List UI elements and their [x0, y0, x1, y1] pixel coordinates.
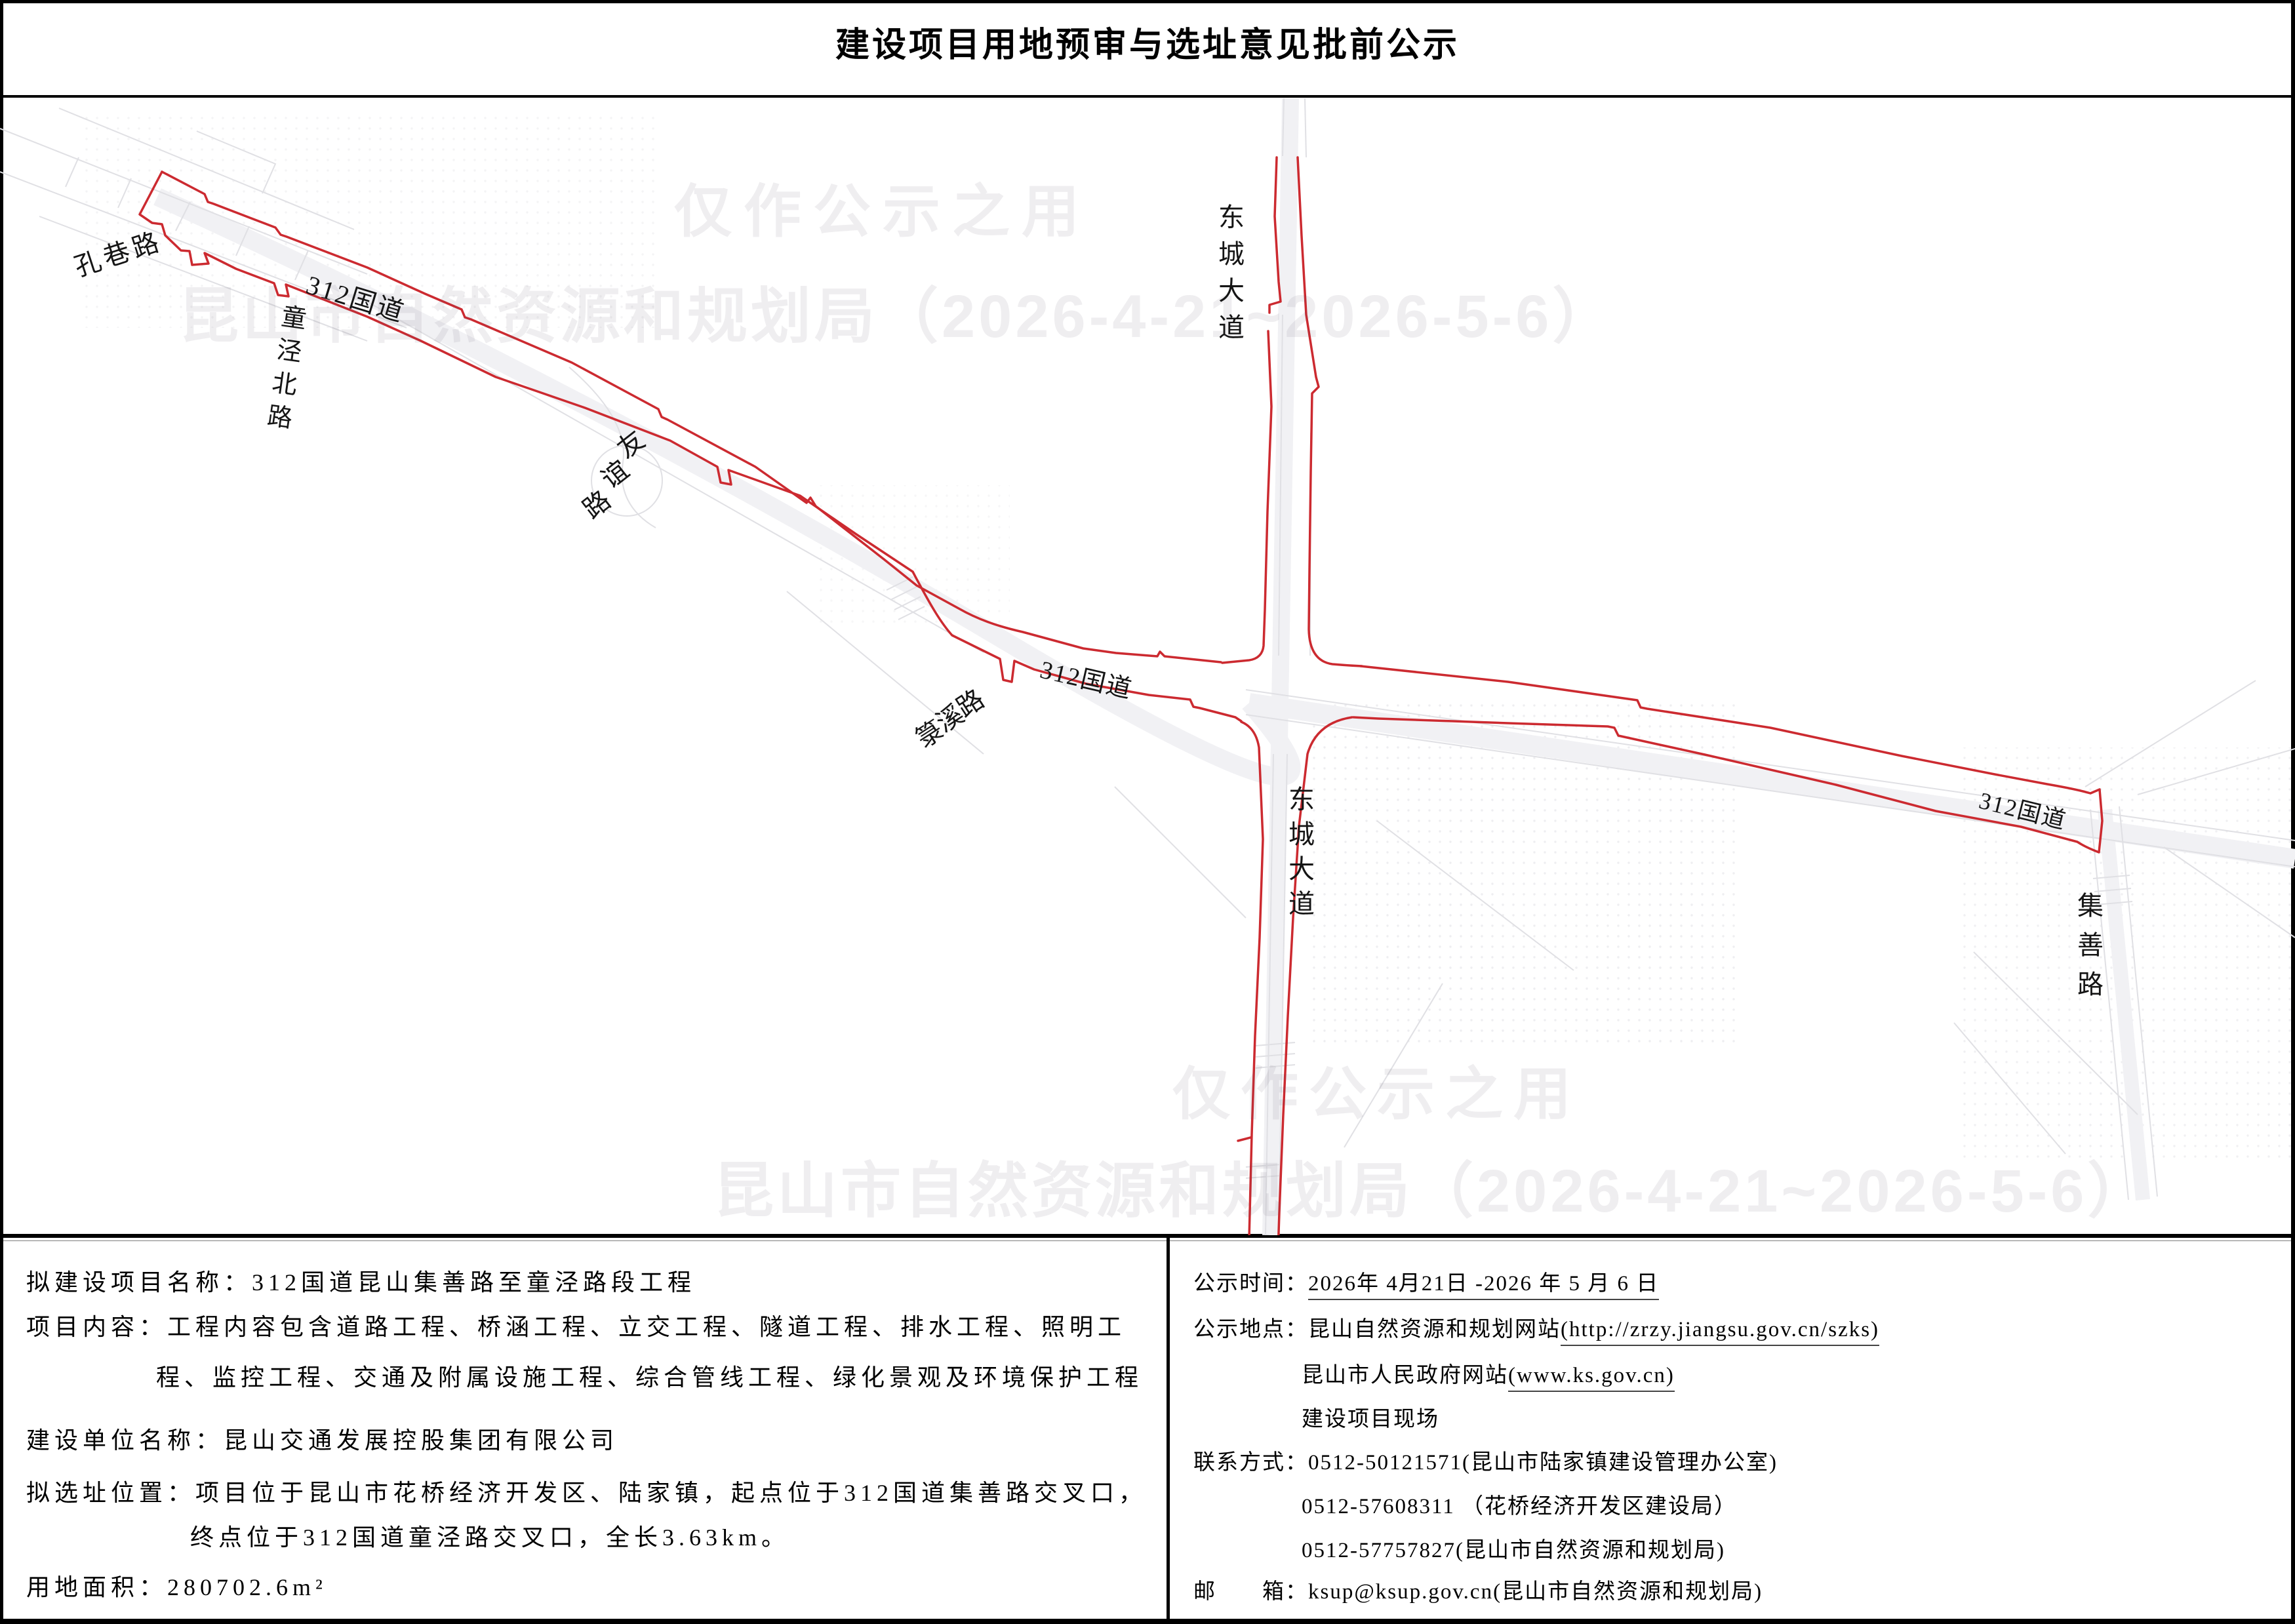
info-text: 程、监控工程、交通及附属设施工程、综合管线工程、绿化景观及环境保护工程 [156, 1364, 1143, 1391]
page-border-top [0, 0, 2295, 3]
info-text: (http://zrzy.jiangsu.gov.cn/szks) [1561, 1318, 1879, 1346]
info-text: 拟选址位置：项目位于昆山市花桥经济开发区、陆家镇，起点位于312国道集善路交叉口… [26, 1480, 1147, 1506]
info-text: 公示地点：昆山自然资源和规划网站 [1193, 1318, 1561, 1341]
dongcheng-north-west-edge-2 [1222, 331, 1271, 663]
land-area-row: 用地面积：280702.6m² [26, 1568, 327, 1602]
site-location-row-2: 终点位于312国道童泾路交叉口，全长3.63km。 [190, 1518, 789, 1553]
project-content-row: 项目内容：工程内容包含道路工程、桥涵工程、立交工程、隧道工程、排水工程、照明工 [26, 1308, 1126, 1342]
info-text: 昆山市人民政府网站 [1302, 1364, 1508, 1387]
jishan-road-label: 集善路 [2069, 892, 2107, 1010]
info-text: 建设项目现场 [1302, 1408, 1439, 1431]
info-text: 建设单位名称：昆山交通发展控股集团有限公司 [26, 1427, 618, 1454]
notice-place-row-2: 昆山市人民政府网站(www.ks.gov.cn) [1302, 1357, 1675, 1389]
map-dot-texture [79, 111, 2295, 1160]
construction-unit-row: 建设单位名称：昆山交通发展控股集团有限公司 [26, 1421, 618, 1456]
notice-time-row: 公示时间：2026年 4月21日 -2026 年 5 月 6 日 [1193, 1265, 1659, 1297]
panel-divider-vertical [1167, 1234, 1170, 1624]
info-text: 用地面积：280702.6m² [26, 1574, 327, 1600]
contact-row: 联系方式：0512-50121571(昆山市陆家镇建设管理办公室) [1193, 1444, 1778, 1476]
dongcheng-north-east-edge [1298, 157, 1362, 666]
site-map [0, 95, 2295, 1235]
site-location-row: 拟选址位置：项目位于昆山市花桥经济开发区、陆家镇，起点位于312国道集善路交叉口… [26, 1474, 1147, 1508]
panel-divider-thin [0, 1240, 2295, 1241]
dongcheng-south-west-edge [1241, 722, 1263, 1235]
notice-place-row-3: 建设项目现场 [1302, 1401, 1439, 1433]
email-row: 邮 箱：ksup@ksup.gov.cn(昆山市自然资源和规划局) [1193, 1574, 1763, 1605]
info-text: 公示时间： [1193, 1272, 1308, 1296]
boundary-tick [1238, 1138, 1250, 1141]
page-title: 建设项目用地预审与选址意见批前公示 [0, 17, 2295, 66]
project-content-row-2: 程、监控工程、交通及附属设施工程、综合管线工程、绿化景观及环境保护工程 [156, 1358, 1143, 1393]
public-notice-page: { "title": "建设项目用地预审与选址意见批前公示", "waterma… [0, 0, 2295, 1624]
info-text: 拟建设项目名称：312国道昆山集善路至童泾路段工程 [26, 1269, 696, 1296]
info-text: 终点位于312国道童泾路交叉口，全长3.63km。 [190, 1524, 789, 1551]
info-text: 0512-57757827(昆山市自然资源和规划局) [1302, 1539, 1725, 1562]
info-text: 0512-57608311 （花桥经济开发区建设局） [1302, 1495, 1737, 1518]
info-text: (www.ks.gov.cn) [1508, 1364, 1675, 1392]
info-text: 项目内容：工程内容包含道路工程、桥涵工程、立交工程、隧道工程、排水工程、照明工 [26, 1314, 1126, 1340]
contact-row-3: 0512-57757827(昆山市自然资源和规划局) [1302, 1532, 1725, 1564]
project-name-row: 拟建设项目名称：312国道昆山集善路至童泾路段工程 [26, 1263, 696, 1297]
page-border-bottom [0, 1619, 2295, 1624]
dongcheng-north-west-edge [1269, 157, 1281, 313]
dongcheng-avenue-south-label: 东城大道 [1280, 785, 1318, 924]
info-text: 联系方式：0512-50121571(昆山市陆家镇建设管理办公室) [1193, 1451, 1778, 1475]
info-text: 邮 箱：ksup@ksup.gov.cn(昆山市自然资源和规划局) [1193, 1580, 1763, 1604]
dongcheng-avenue-north-label: 东城大道 [1210, 203, 1248, 350]
contact-row-2: 0512-57608311 （花桥经济开发区建设局） [1302, 1488, 1737, 1520]
notice-place-row: 公示地点：昆山自然资源和规划网站(http://zrzy.jiangsu.gov… [1193, 1311, 1879, 1343]
info-text: 2026年 4月21日 -2026 年 5 月 6 日 [1308, 1272, 1659, 1300]
